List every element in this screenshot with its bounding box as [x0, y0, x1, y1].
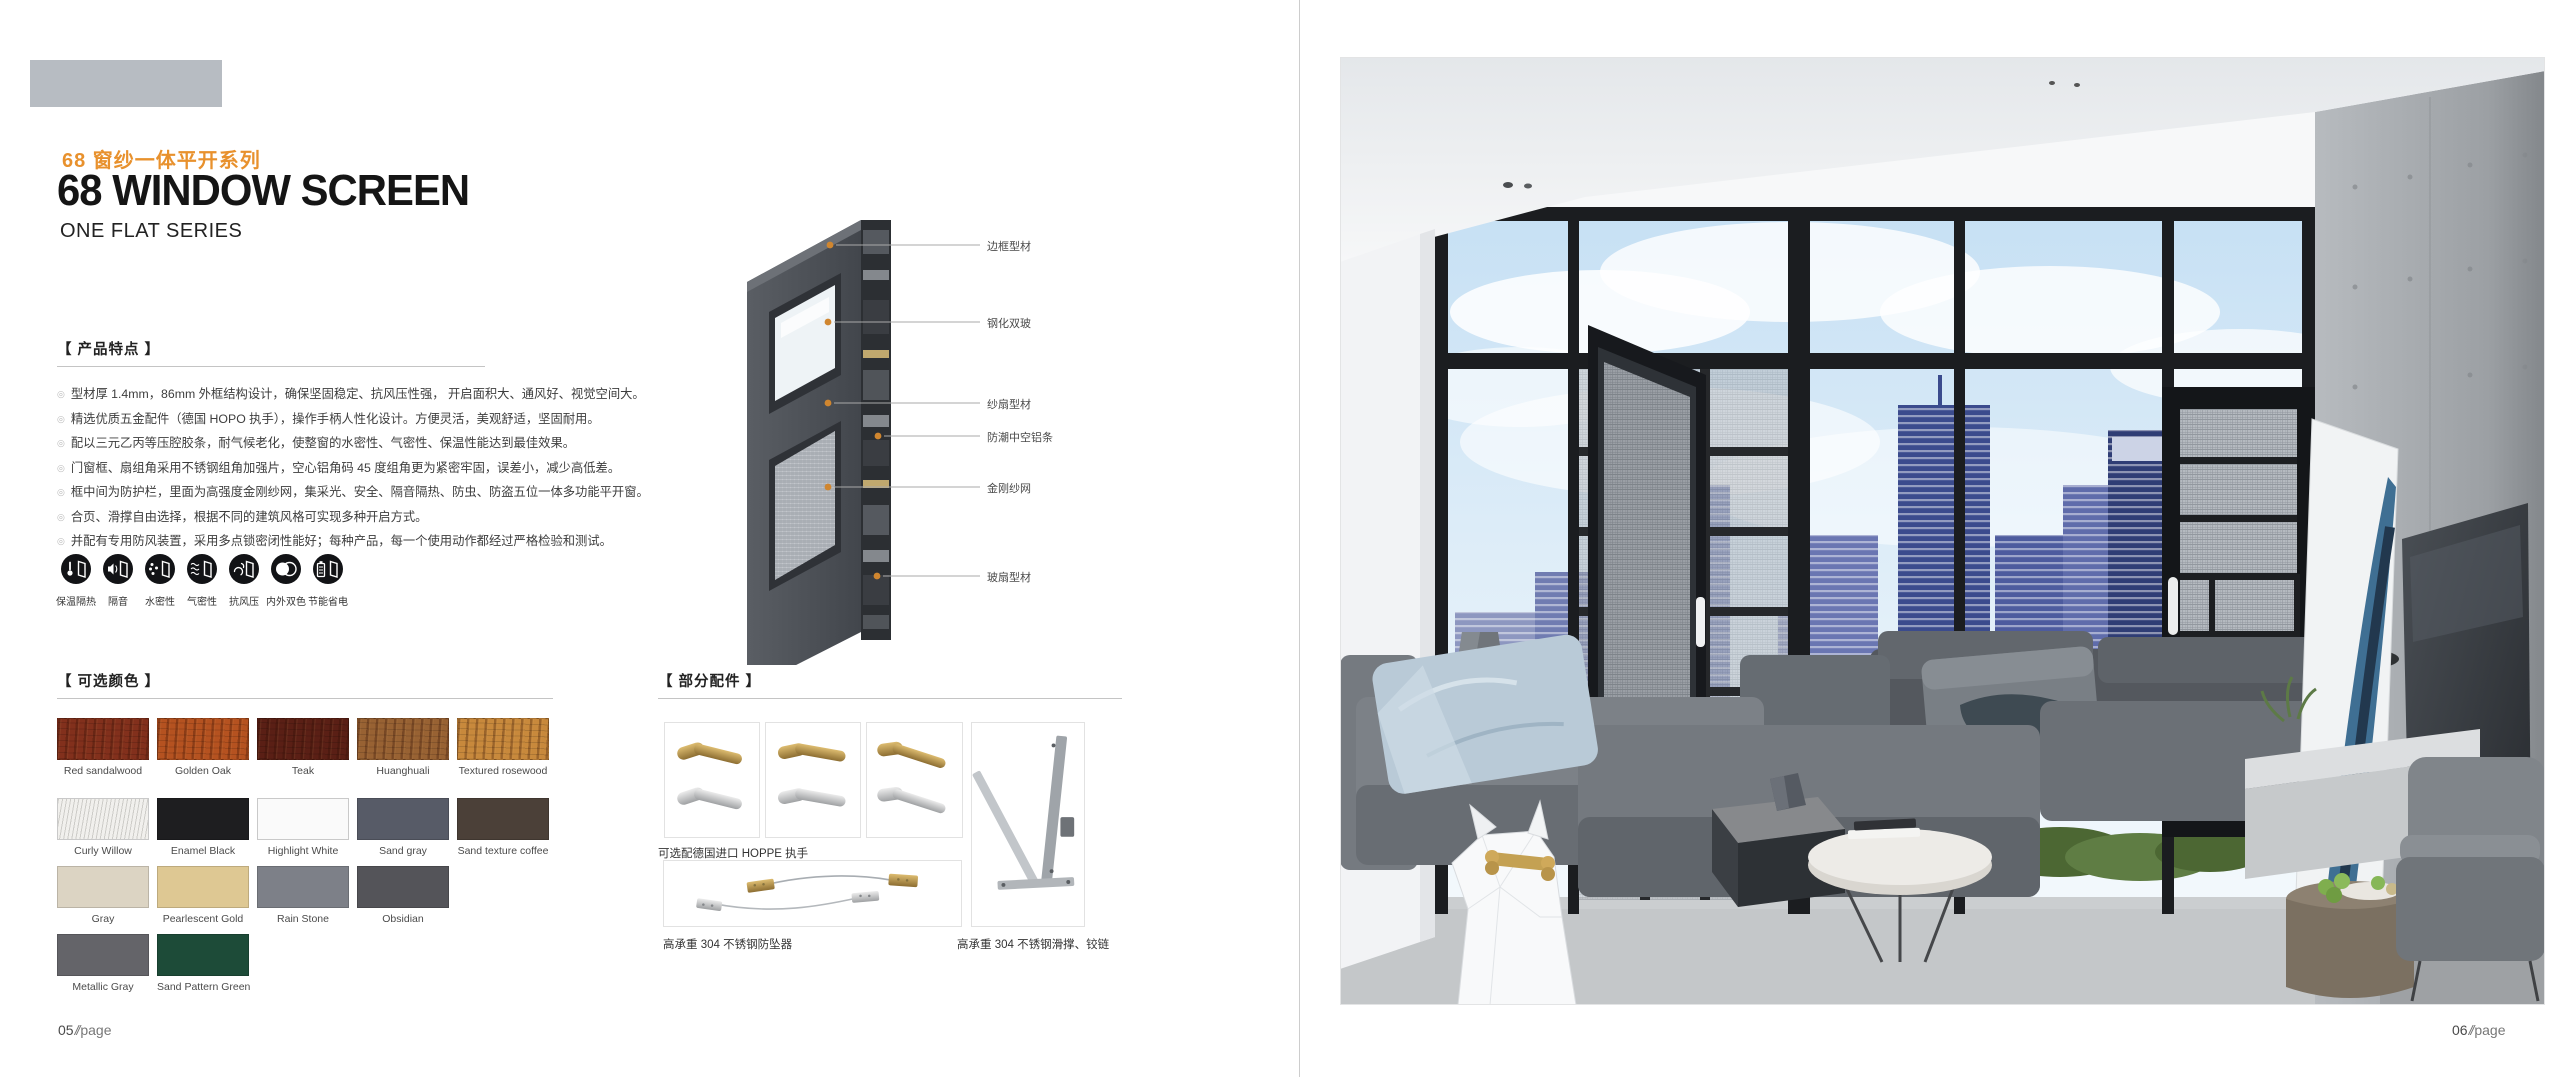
swatch-color	[257, 718, 349, 760]
anti-fall-device-image	[663, 860, 962, 927]
swatch-label: Huanghuali	[357, 765, 449, 777]
feature-icon-label: 隔音	[97, 593, 139, 608]
color-swatch-obsidian: Obsidian	[357, 866, 449, 925]
feature-icon-air-tightness: 气密性	[181, 554, 223, 608]
silver-handle-icon	[676, 786, 743, 810]
color-swatch-sand-gray: Sand gray	[357, 798, 449, 857]
feature-icon-label: 节能省电	[307, 593, 349, 608]
ceiling-light	[1503, 182, 1513, 188]
lifestyle-photo	[1340, 57, 2545, 1005]
swatch-color	[157, 718, 249, 760]
swatch-label: Red sandalwood	[57, 765, 149, 777]
side-stool	[2286, 873, 2414, 998]
accessories-divider	[658, 698, 1122, 699]
swatch-label: Gray	[57, 913, 149, 925]
swatch-color	[457, 718, 549, 760]
sound-insulation-icon	[103, 571, 133, 588]
colors-heading: 【 可选颜色 】	[57, 670, 160, 691]
swatch-color	[57, 866, 149, 908]
swatch-color	[57, 718, 149, 760]
handles-caption: 可选配德国进口 HOPPE 执手	[658, 845, 808, 861]
feature-icon-label: 抗风压	[223, 593, 265, 608]
feature-text: 配以三元乙丙等压腔胶条，耐气候老化，使整窗的水密性、气密性、保温性能达到最佳效果…	[71, 436, 575, 450]
diagram-callout: 玻扇型材	[987, 569, 1031, 585]
page-spine-divider	[1299, 0, 1300, 1077]
page-number-word: page	[2474, 1022, 2505, 1038]
page-number-right: 06//page	[2452, 1022, 2506, 1038]
bullet-icon: ◎	[57, 438, 65, 448]
handle-image-3	[866, 722, 963, 838]
diagram-callout: 边框型材	[987, 238, 1031, 254]
features-divider	[57, 366, 485, 367]
handle-image-1	[664, 722, 760, 838]
page-number-slashes: //	[75, 1022, 79, 1038]
feature-icon-sound-insulation: 隔音	[97, 554, 139, 608]
color-swatch-pearlescent-gold: Pearlescent Gold	[157, 866, 249, 925]
features-list: ◎型材厚 1.4mm，86mm 外框结构设计，确保坚固稳定、抗风压性强， 开启面…	[57, 382, 677, 554]
energy-saving-icon	[313, 571, 343, 588]
diagram-callout: 金刚纱网	[987, 480, 1031, 496]
swatch-color	[257, 866, 349, 908]
feature-icons-row: 保温隔热隔音水密性气密性抗风压内外双色节能省电	[55, 554, 349, 608]
bullet-icon: ◎	[57, 389, 65, 399]
window-handle	[2168, 577, 2178, 635]
feature-icon-label: 水密性	[139, 593, 181, 608]
swatch-color	[57, 798, 149, 840]
swatch-label: Textured rosewood	[457, 765, 549, 777]
handle-image-2	[765, 722, 861, 838]
swatch-color	[457, 798, 549, 840]
swatch-label: Curly Willow	[57, 845, 149, 857]
swatch-color	[157, 798, 249, 840]
feature-icon-label: 内外双色	[265, 593, 307, 608]
diagram-callout: 防潮中空铝条	[987, 429, 1053, 445]
feature-text: 合页、滑撑自由选择，根据不同的建筑风格可实现多种开启方式。	[71, 510, 428, 524]
thermal-insulation-icon	[61, 571, 91, 588]
color-swatch-metallic-gray: Metallic Gray	[57, 934, 149, 993]
accessories-heading: 【 部分配件 】	[658, 670, 761, 691]
cross-section-illustration	[735, 160, 1165, 665]
swatch-label: Metallic Gray	[57, 981, 149, 993]
swatch-color	[257, 798, 349, 840]
swatch-label: Teak	[257, 765, 349, 777]
swatch-color	[157, 866, 249, 908]
feature-item: ◎精选优质五金配件（德国 HOPO 执手），操作手柄人性化设计。方便灵活，美观舒…	[57, 407, 677, 432]
gold-handle-icon	[676, 741, 743, 765]
color-swatch-sand-texture-coffee: Sand texture coffee	[457, 798, 549, 857]
feature-item: ◎并配有专用防风装置，采用多点锁密闭性能好；每种产品，每一个使用动作都经过严格检…	[57, 529, 677, 554]
page-number-value: 06	[2452, 1022, 2468, 1038]
swatch-color	[157, 934, 249, 976]
feature-icon-wind-pressure-resistance: 抗风压	[223, 554, 265, 608]
feature-icon-dual-color: 内外双色	[265, 554, 307, 608]
swatch-label: Highlight White	[257, 845, 349, 857]
features-heading: 【 产品特点 】	[57, 338, 160, 359]
feature-text: 框中间为防护栏，里面为高强度金刚纱网，集采光、安全、隔音隔热、防虫、防盗五位一体…	[71, 485, 649, 499]
color-swatch-textured-rosewood: Textured rosewood	[457, 718, 549, 777]
diagram-callout: 纱扇型材	[987, 396, 1031, 412]
diagram-callout: 钢化双玻	[987, 315, 1031, 331]
feature-item: ◎合页、滑撑自由选择，根据不同的建筑风格可实现多种开启方式。	[57, 505, 677, 530]
feature-icon-label: 保温隔热	[55, 593, 97, 608]
brand-color-block	[30, 60, 222, 107]
color-swatch-teak: Teak	[257, 718, 349, 777]
feature-text: 并配有专用防风装置，采用多点锁密闭性能好；每种产品，每一个使用动作都经过严格检验…	[71, 534, 612, 548]
swatch-label: Pearlescent Gold	[157, 913, 249, 925]
feature-icon-energy-saving: 节能省电	[307, 554, 349, 608]
swatch-label: Sand gray	[357, 845, 449, 857]
ceiling-light	[1524, 184, 1532, 189]
swatch-label: Sand texture coffee	[457, 845, 549, 857]
window-handle	[1696, 597, 1705, 647]
feature-item: ◎型材厚 1.4mm，86mm 外框结构设计，确保坚固稳定、抗风压性强， 开启面…	[57, 382, 677, 407]
color-swatch-red-sandalwood: Red sandalwood	[57, 718, 149, 777]
colors-divider	[57, 698, 553, 699]
antifall-caption: 高承重 304 不锈钢防坠器	[663, 936, 792, 952]
swatch-color	[357, 866, 449, 908]
swatch-label: Rain Stone	[257, 913, 349, 925]
feature-text: 门窗框、扇组角采用不锈钢组角加强片，空心铝角码 45 度组角更为紧密牢固，误差小…	[71, 461, 620, 475]
air-tightness-icon	[187, 571, 217, 588]
window-cross-section-diagram: 边框型材钢化双玻纱扇型材防潮中空铝条金刚纱网玻扇型材	[735, 160, 1165, 665]
feature-item: ◎门窗框、扇组角采用不锈钢组角加强片，空心铝角码 45 度组角更为紧密牢固，误差…	[57, 456, 677, 481]
color-swatch-gray: Gray	[57, 866, 149, 925]
bullet-icon: ◎	[57, 536, 65, 546]
color-swatch-highlight-white: Highlight White	[257, 798, 349, 857]
feature-icon-water-tightness: 水密性	[139, 554, 181, 608]
bullet-icon: ◎	[57, 414, 65, 424]
dual-color-icon	[271, 571, 301, 588]
page-number-left: 05//page	[58, 1022, 112, 1038]
bullet-icon: ◎	[57, 512, 65, 522]
page-number-word: page	[80, 1022, 111, 1038]
color-swatch-enamel-black: Enamel Black	[157, 798, 249, 857]
feature-icon-label: 气密性	[181, 593, 223, 608]
feature-text: 型材厚 1.4mm，86mm 外框结构设计，确保坚固稳定、抗风压性强， 开启面积…	[71, 387, 645, 401]
color-swatch-rain-stone: Rain Stone	[257, 866, 349, 925]
hinge-caption: 高承重 304 不锈钢滑撑、铰链	[957, 936, 1109, 952]
swatch-color	[357, 798, 449, 840]
wind-pressure-resistance-icon	[229, 571, 259, 588]
bullet-icon: ◎	[57, 487, 65, 497]
swatch-label: Enamel Black	[157, 845, 249, 857]
feature-icon-thermal-insulation: 保温隔热	[55, 554, 97, 608]
color-swatch-sand-pattern-green: Sand Pattern Green	[157, 934, 249, 993]
series-subtitle-en: ONE FLAT SERIES	[60, 220, 242, 243]
swatch-label: Sand Pattern Green	[157, 981, 249, 993]
series-title-en: 68 WINDOW SCREEN	[57, 168, 469, 214]
page-number-slashes: //	[2469, 1022, 2473, 1038]
bullet-icon: ◎	[57, 463, 65, 473]
water-tightness-icon	[145, 571, 175, 588]
color-swatch-curly-willow: Curly Willow	[57, 798, 149, 857]
swatch-color	[57, 934, 149, 976]
swatch-label: Obsidian	[357, 913, 449, 925]
color-swatch-golden-oak: Golden Oak	[157, 718, 249, 777]
color-swatch-huanghuali: Huanghuali	[357, 718, 449, 777]
feature-item: ◎配以三元乙丙等压腔胶条，耐气候老化，使整窗的水密性、气密性、保温性能达到最佳效…	[57, 431, 677, 456]
friction-stay-image	[971, 722, 1085, 927]
feature-text: 精选优质五金配件（德国 HOPO 执手），操作手柄人性化设计。方便灵活，美观舒适…	[71, 412, 600, 426]
swatch-color	[357, 718, 449, 760]
feature-item: ◎框中间为防护栏，里面为高强度金刚纱网，集采光、安全、隔音隔热、防虫、防盗五位一…	[57, 480, 677, 505]
page-number-value: 05	[58, 1022, 74, 1038]
swatch-label: Golden Oak	[157, 765, 249, 777]
